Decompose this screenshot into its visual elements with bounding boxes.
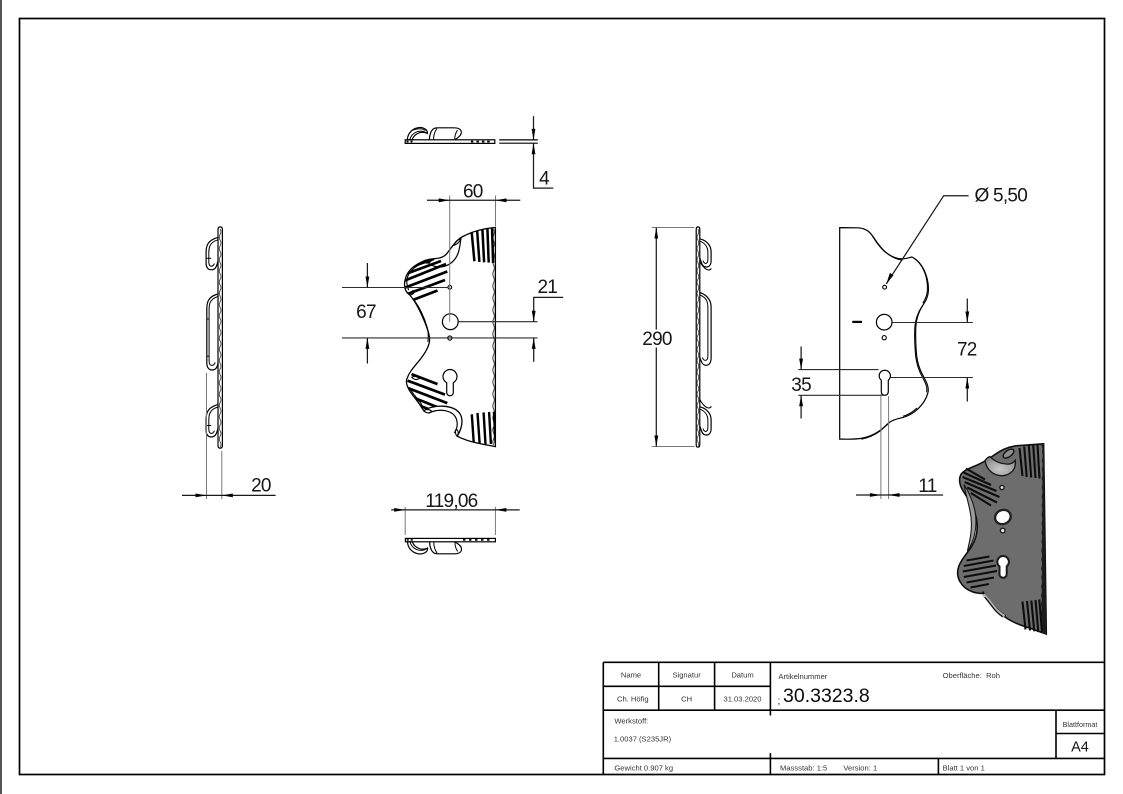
svg-text:Version: 1: Version: 1 (843, 764, 877, 773)
svg-text:67: 67 (356, 302, 376, 323)
svg-text:Signatur: Signatur (672, 671, 701, 680)
svg-text:Gewicht 0.907 kg: Gewicht 0.907 kg (614, 764, 673, 773)
svg-text:72: 72 (957, 340, 977, 361)
svg-text:Artikelnummer: Artikelnummer (778, 672, 827, 681)
svg-text:Blatt 1 von 1: Blatt 1 von 1 (943, 764, 985, 773)
svg-text:35: 35 (791, 375, 811, 396)
svg-text:Ø 5,50: Ø 5,50 (975, 185, 1028, 206)
svg-text:Blattformat: Blattformat (1063, 720, 1098, 729)
svg-text:60: 60 (463, 181, 483, 202)
svg-text:20: 20 (251, 476, 271, 497)
svg-text:290: 290 (642, 329, 672, 350)
svg-text:Name: Name (621, 671, 641, 680)
svg-text:Werkstoff:: Werkstoff: (614, 717, 648, 726)
svg-text:11: 11 (918, 476, 936, 497)
svg-text:A4: A4 (1071, 740, 1089, 756)
svg-text:119,06: 119,06 (425, 491, 477, 512)
svg-text:Datum: Datum (731, 671, 753, 680)
svg-text:;: ; (778, 696, 781, 707)
svg-text:Oberfläche: Roh: Oberfläche: Roh (943, 671, 1000, 680)
svg-text:CH: CH (681, 695, 692, 704)
svg-text:21: 21 (537, 277, 557, 298)
svg-text:30.3323.8: 30.3323.8 (783, 685, 870, 707)
svg-text:Ch. Höfig: Ch. Höfig (617, 695, 649, 704)
svg-text:31.03.2020: 31.03.2020 (723, 695, 761, 704)
svg-text:Massstab: 1:5: Massstab: 1:5 (780, 764, 827, 773)
svg-text:4: 4 (539, 169, 550, 190)
svg-text:1.0037 (S235JR): 1.0037 (S235JR) (614, 735, 672, 744)
